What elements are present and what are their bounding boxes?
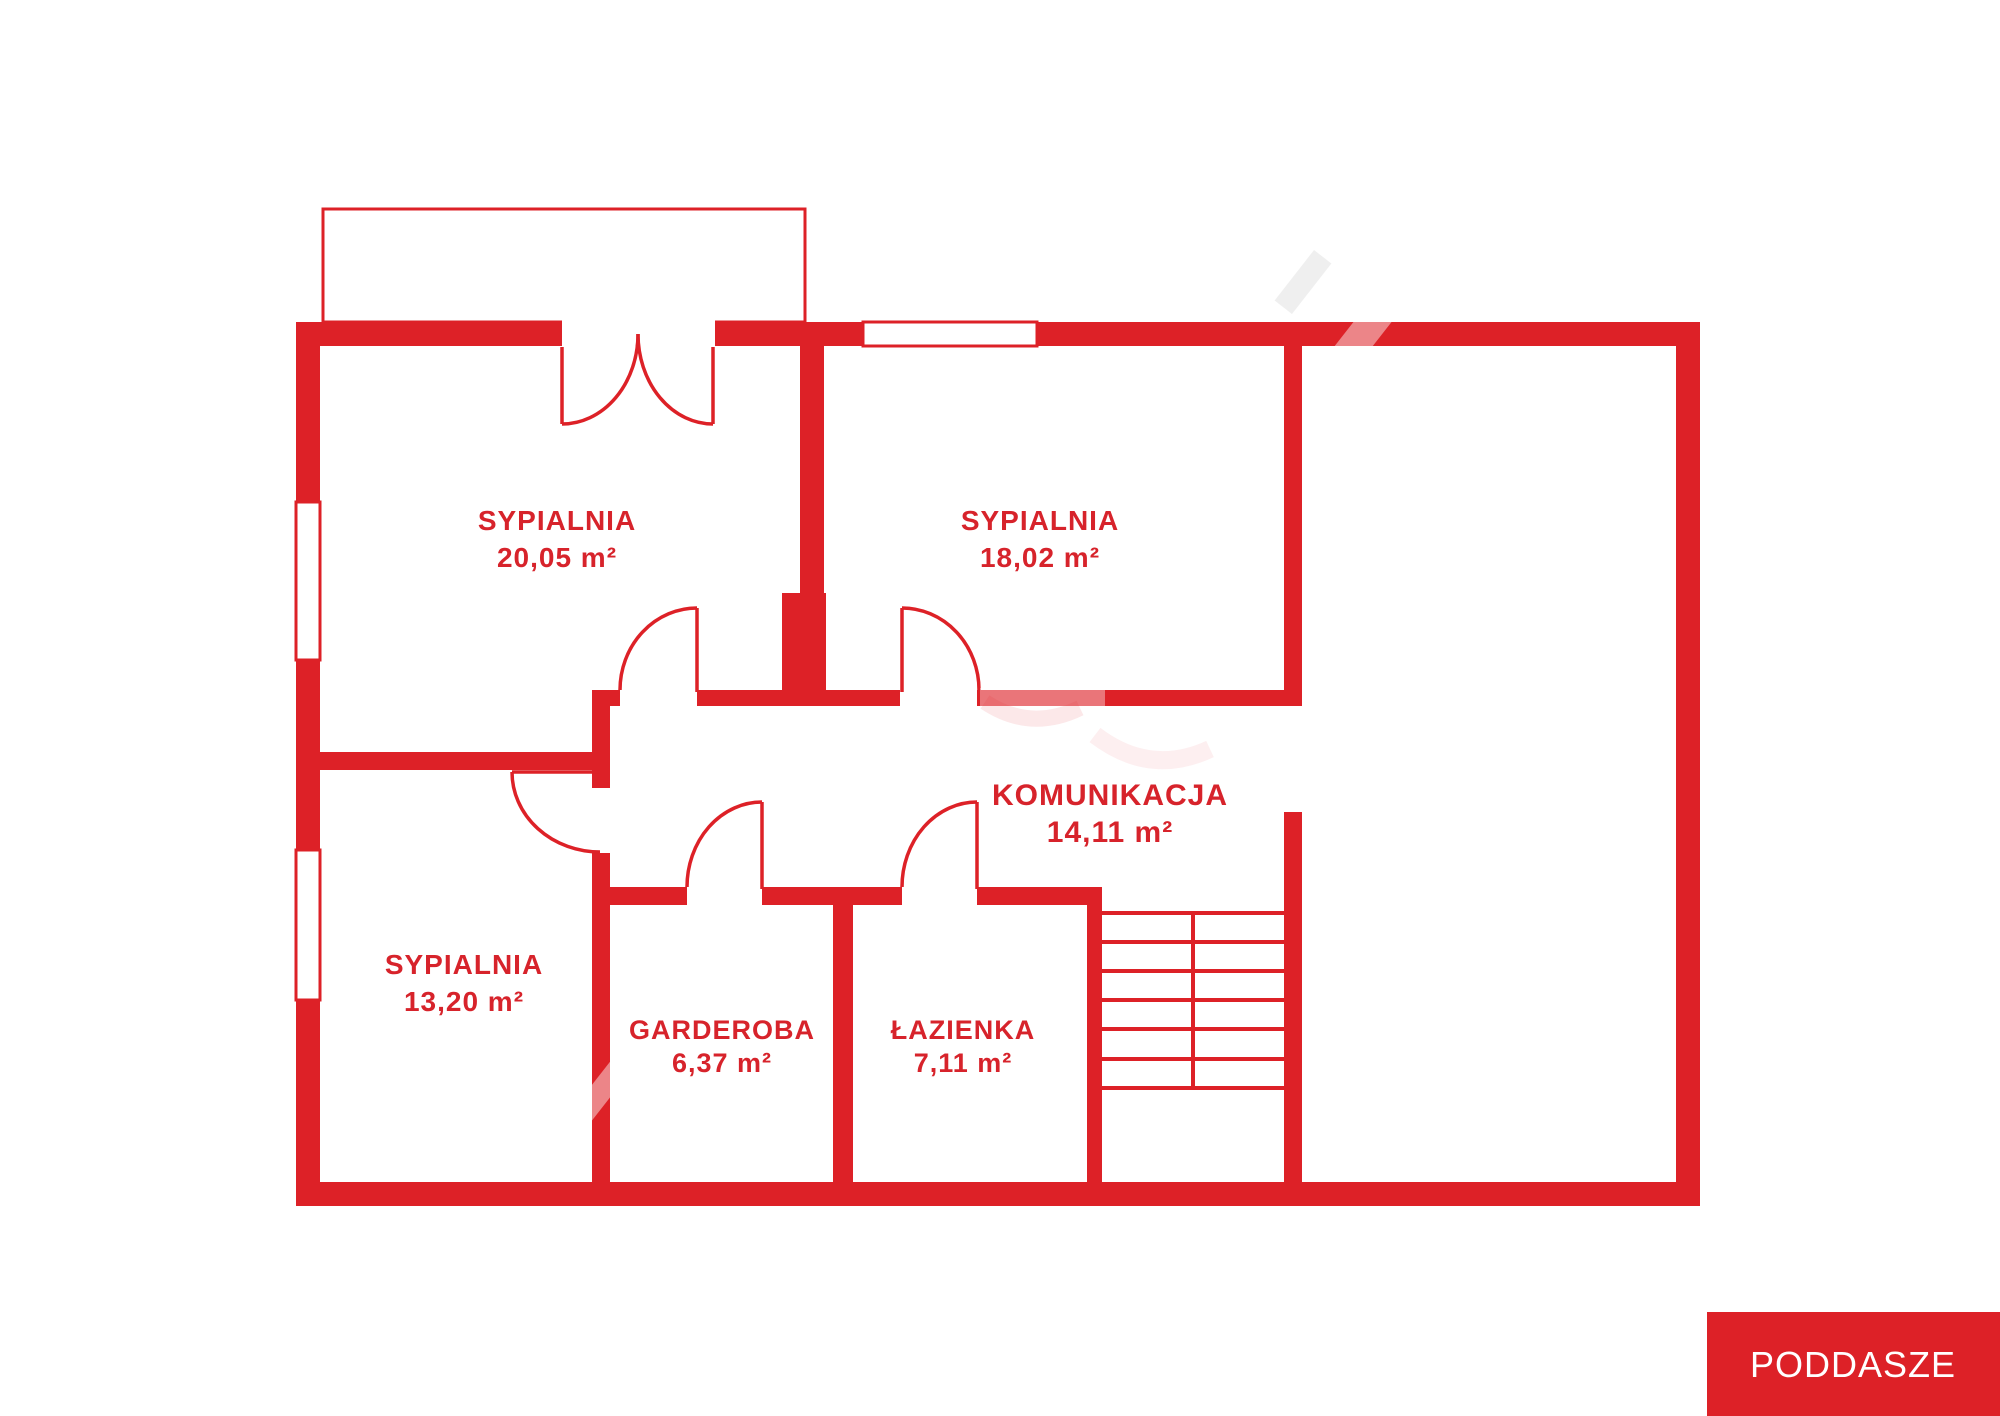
wall-stairs-right (1284, 812, 1302, 1182)
room-area-komunikacja: 14,11 m² (1047, 816, 1173, 849)
room-label-sypialnia-1: SYPIALNIA (478, 505, 636, 536)
wall-bedroom3-top (320, 752, 593, 770)
room-area-sypialnia-1: 20,05 m² (497, 542, 617, 573)
room-area-sypialnia-3: 13,20 m² (404, 986, 524, 1017)
wall-rooms-top-c (977, 887, 1087, 905)
floorplan-drawing: SYPIALNIA 20,05 m² SYPIALNIA 18,02 m² KO… (0, 0, 2000, 1416)
room-area-garderoba: 6,37 m² (672, 1048, 772, 1078)
wall-stairs-left (1087, 887, 1102, 1182)
bedroom3-door (512, 772, 600, 852)
garderoba-door (687, 802, 762, 889)
room-label-lazienka: ŁAZIENKA (891, 1015, 1036, 1045)
room-area-sypialnia-2: 18,02 m² (980, 542, 1100, 573)
window-left-upper (296, 502, 320, 660)
wall-bottom (296, 1182, 1700, 1206)
room-area-lazienka: 7,11 m² (914, 1048, 1013, 1078)
wall-left (296, 322, 320, 1206)
floor-legend: PODDASZE (1707, 1312, 2000, 1416)
wall-right (1676, 322, 1700, 1206)
room-label-sypialnia-3: SYPIALNIA (385, 949, 543, 980)
wall-garderoba-lazienka-divider (833, 887, 853, 1182)
wall-bedroom2-right (1284, 346, 1302, 706)
floor-legend-label: PODDASZE (1750, 1344, 1956, 1385)
room-label-garderoba: GARDEROBA (629, 1015, 815, 1045)
wall-bedroom-divider (800, 346, 824, 593)
wall-garderoba-left (592, 853, 610, 1182)
wall-pillar (782, 593, 826, 690)
room-label-sypialnia-2: SYPIALNIA (961, 505, 1119, 536)
balcony-outline (323, 209, 805, 322)
bedroom2-door (902, 608, 979, 692)
wall-rooms-top-b (762, 887, 902, 905)
lazienka-door (902, 802, 977, 889)
staircase (1102, 913, 1284, 1088)
wall-hall-top-mid (697, 690, 900, 706)
window-left-lower (296, 850, 320, 1000)
doors (512, 334, 979, 889)
wall-rooms-top-a (610, 887, 687, 905)
window-top (863, 322, 1037, 346)
bedroom1-door (620, 608, 697, 692)
floorplan-page: SYPIALNIA 20,05 m² SYPIALNIA 18,02 m² KO… (0, 0, 2000, 1416)
room-label-komunikacja: KOMUNIKACJA (992, 779, 1228, 812)
